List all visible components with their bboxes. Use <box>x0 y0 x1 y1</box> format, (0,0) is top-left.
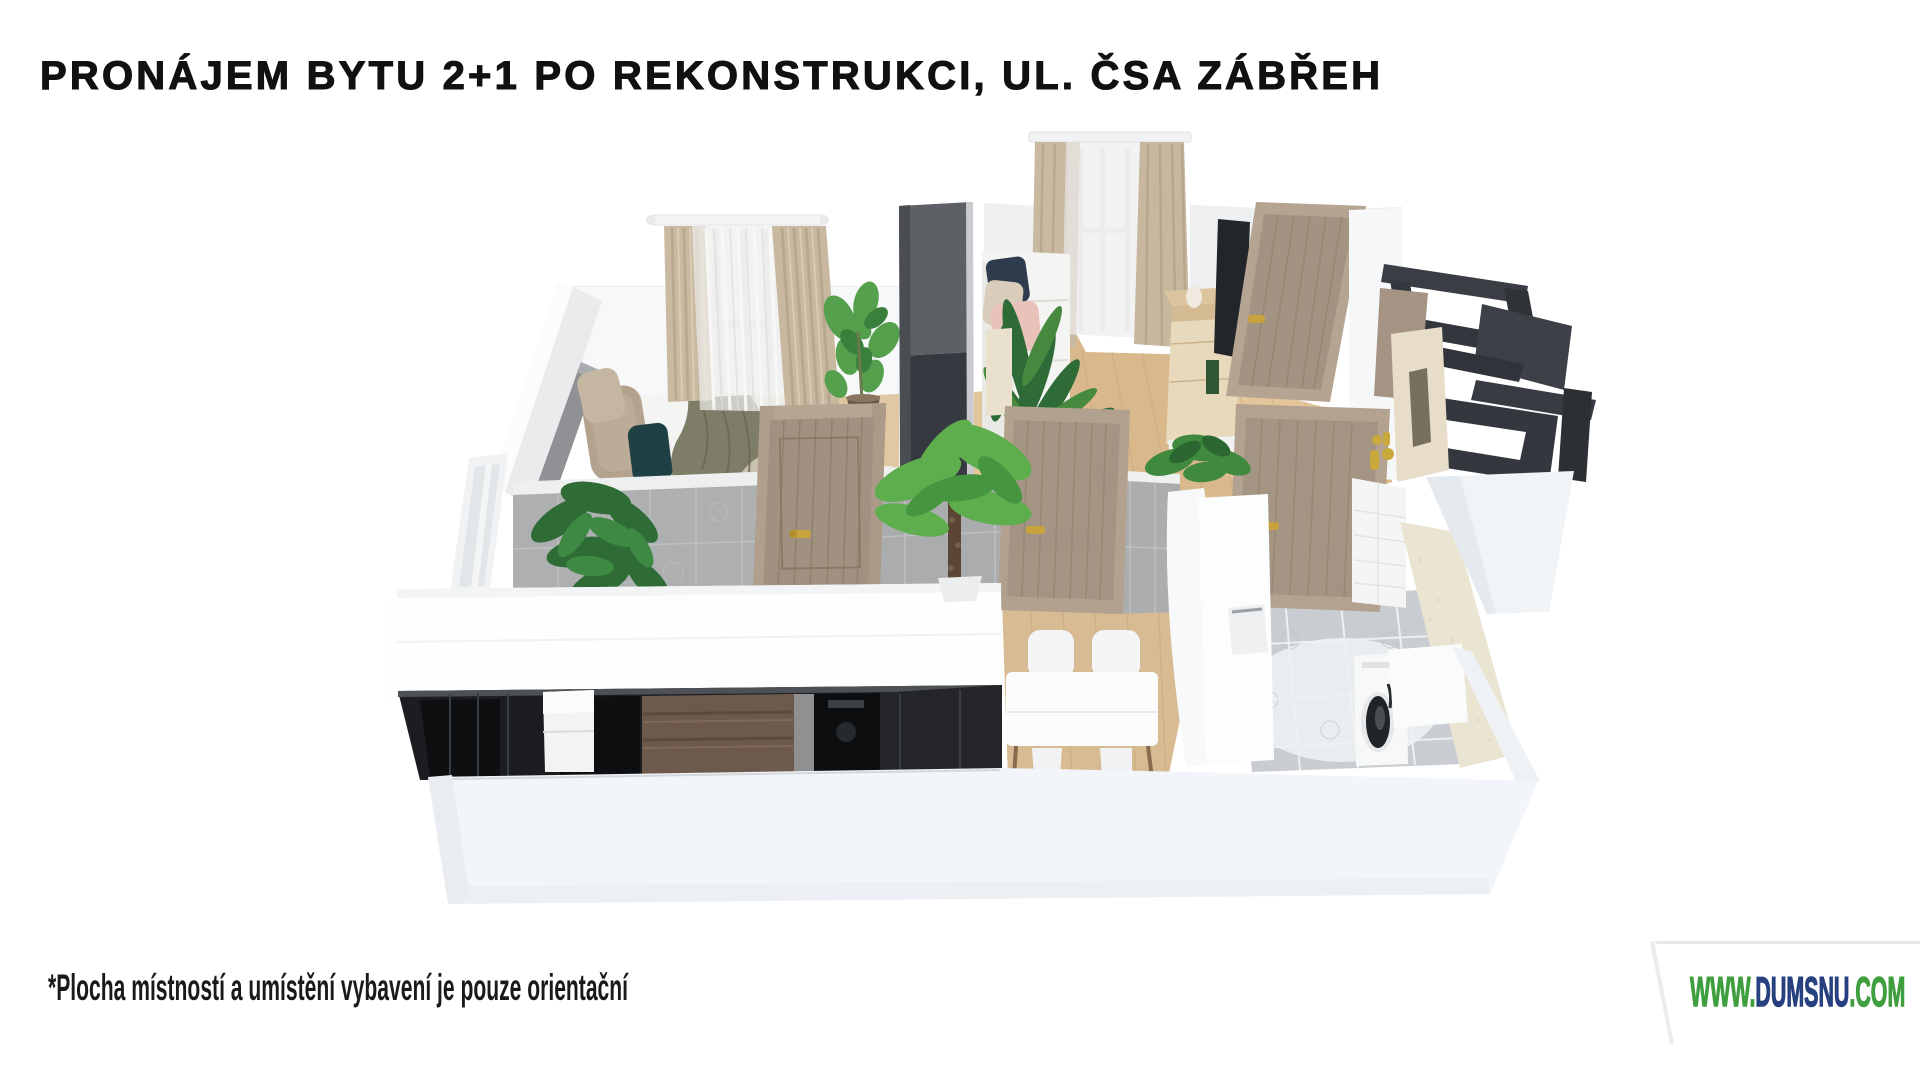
svg-text:*Plocha místností a umístění v: *Plocha místností a umístění vybavení je… <box>48 968 629 1009</box>
svg-text:WWW.DUMSNU.COM: WWW.DUMSNU.COM <box>1690 969 1905 1016</box>
svg-text:PRONÁJEM BYTU 2+1 PO REKONSTRU: PRONÁJEM BYTU 2+1 PO REKONSTRUKCI, UL. Č… <box>40 52 1383 98</box>
